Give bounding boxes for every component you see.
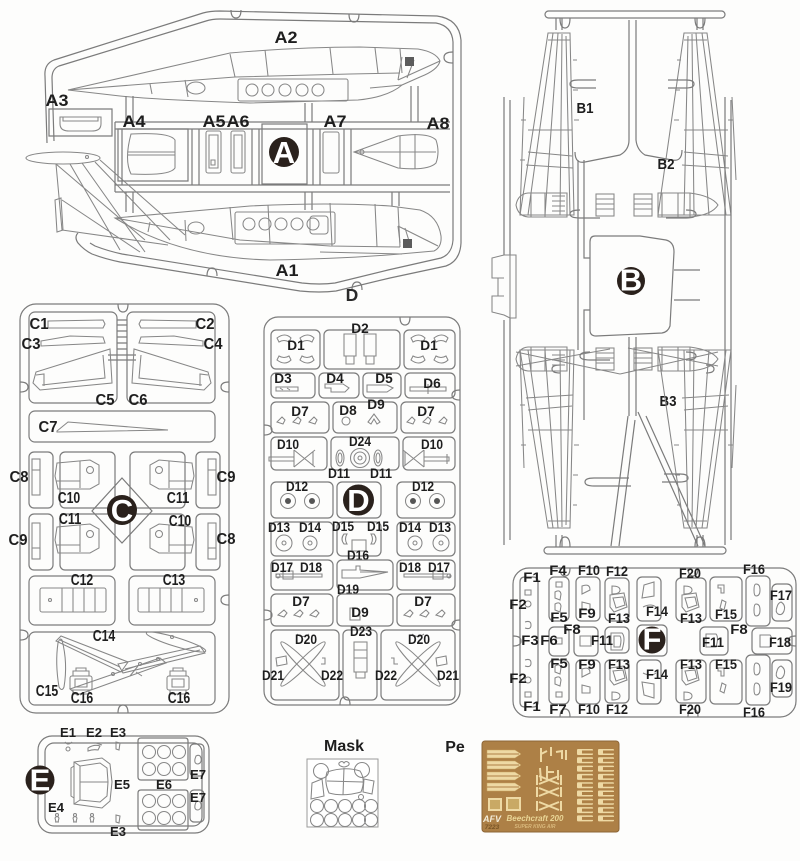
svg-text:D11: D11 (370, 466, 392, 481)
svg-text:F12: F12 (606, 564, 628, 579)
svg-text:E7: E7 (190, 767, 206, 782)
svg-text:D17: D17 (271, 560, 293, 575)
svg-text:F2: F2 (509, 597, 527, 612)
svg-text:D12: D12 (412, 479, 434, 494)
svg-text:D10: D10 (277, 437, 299, 452)
svg-text:C15: C15 (36, 683, 59, 700)
svg-text:E2: E2 (86, 725, 102, 740)
svg-text:F: F (643, 622, 662, 657)
svg-text:C13: C13 (163, 572, 186, 589)
svg-text:Beechcraft 200: Beechcraft 200 (507, 814, 564, 823)
svg-text:F13: F13 (608, 611, 630, 626)
svg-text:C9: C9 (9, 532, 28, 549)
svg-text:D: D (346, 285, 359, 305)
svg-text:D22: D22 (375, 668, 397, 683)
svg-text:F17: F17 (770, 588, 792, 603)
svg-text:F18: F18 (769, 635, 791, 650)
svg-text:C14: C14 (93, 628, 116, 645)
svg-text:F9: F9 (578, 657, 596, 672)
svg-text:A2: A2 (275, 29, 298, 47)
svg-text:D15: D15 (332, 519, 354, 534)
svg-text:C6: C6 (129, 392, 148, 409)
svg-text:D17: D17 (428, 560, 450, 575)
svg-text:F9: F9 (578, 606, 596, 621)
svg-text:F15: F15 (715, 607, 737, 622)
svg-text:D18: D18 (300, 560, 322, 575)
svg-text:F16: F16 (743, 562, 765, 577)
svg-text:C8: C8 (10, 469, 29, 486)
svg-text:E3: E3 (110, 725, 126, 740)
svg-text:F4: F4 (549, 563, 567, 578)
svg-text:Mask: Mask (324, 738, 364, 755)
svg-text:C4: C4 (204, 336, 223, 353)
svg-text:D9: D9 (367, 397, 385, 412)
svg-text:E1: E1 (60, 725, 76, 740)
svg-text:E5: E5 (114, 777, 130, 792)
svg-text:D1: D1 (420, 338, 438, 353)
svg-text:D13: D13 (268, 520, 290, 535)
svg-text:D23: D23 (350, 624, 372, 639)
svg-text:F13: F13 (680, 657, 702, 672)
svg-text:D14: D14 (299, 520, 321, 535)
svg-text:A: A (273, 135, 295, 170)
svg-text:E7: E7 (190, 790, 206, 805)
svg-text:A6: A6 (227, 113, 250, 131)
svg-text:C12: C12 (71, 572, 94, 589)
svg-text:A8: A8 (427, 115, 450, 133)
svg-text:F3: F3 (521, 633, 539, 648)
svg-text:D16: D16 (347, 548, 369, 563)
svg-text:F13: F13 (608, 657, 630, 672)
svg-text:D3: D3 (274, 371, 292, 386)
svg-text:C3: C3 (22, 336, 41, 353)
svg-text:F5: F5 (550, 656, 568, 671)
svg-text:D6: D6 (423, 376, 441, 391)
svg-text:F15: F15 (715, 657, 737, 672)
svg-text:F7: F7 (549, 702, 567, 717)
svg-text:D2: D2 (351, 321, 369, 336)
svg-text:A5: A5 (203, 113, 226, 131)
svg-text:Pe: Pe (445, 739, 465, 756)
svg-text:AFV: AFV (482, 814, 502, 824)
svg-text:F12: F12 (606, 702, 628, 717)
svg-text:D7: D7 (291, 404, 309, 419)
svg-text:F1: F1 (523, 699, 541, 714)
svg-text:D11: D11 (328, 466, 350, 481)
svg-text:D10: D10 (421, 437, 443, 452)
svg-text:F14: F14 (646, 604, 668, 619)
svg-text:B3: B3 (660, 393, 677, 410)
svg-text:D20: D20 (408, 632, 430, 647)
svg-text:D7: D7 (417, 404, 435, 419)
svg-text:D20: D20 (295, 632, 317, 647)
svg-text:F8: F8 (730, 622, 748, 637)
svg-text:C10: C10 (169, 513, 192, 530)
svg-text:D22: D22 (321, 668, 343, 683)
svg-text:F10: F10 (578, 563, 600, 578)
svg-text:C: C (111, 493, 133, 528)
svg-text:SUPER KING AIR: SUPER KING AIR (515, 824, 556, 830)
svg-text:D1: D1 (287, 338, 305, 353)
svg-text:D8: D8 (339, 403, 357, 418)
svg-text:F11: F11 (702, 635, 724, 650)
svg-text:E: E (30, 763, 51, 798)
svg-text:F10: F10 (578, 702, 600, 717)
svg-text:F11: F11 (591, 633, 613, 648)
svg-text:D18: D18 (399, 560, 421, 575)
svg-text:B2: B2 (658, 156, 675, 173)
svg-text:F6: F6 (540, 633, 558, 648)
svg-text:D5: D5 (375, 371, 393, 386)
svg-text:C10: C10 (58, 490, 81, 507)
svg-text:F14: F14 (646, 667, 668, 682)
svg-text:F20: F20 (679, 566, 701, 581)
svg-text:D14: D14 (399, 520, 421, 535)
svg-text:A1: A1 (276, 262, 299, 280)
svg-text:B: B (620, 263, 642, 298)
svg-text:F13: F13 (680, 611, 702, 626)
svg-text:C2: C2 (196, 316, 215, 333)
svg-text:E3: E3 (110, 824, 126, 839)
svg-text:D9: D9 (351, 605, 369, 620)
svg-text:C16: C16 (168, 690, 191, 707)
svg-text:C11: C11 (59, 511, 82, 528)
svg-text:D21: D21 (437, 668, 459, 683)
svg-text:D15: D15 (367, 519, 389, 534)
svg-text:C11: C11 (167, 490, 190, 507)
svg-text:D7: D7 (414, 594, 432, 609)
svg-text:F20: F20 (679, 702, 701, 717)
svg-text:C8: C8 (217, 531, 236, 548)
svg-text:C7: C7 (39, 419, 58, 436)
svg-text:B1: B1 (577, 100, 594, 117)
svg-text:C5: C5 (96, 392, 115, 409)
svg-text:D7: D7 (292, 594, 310, 609)
svg-text:F1: F1 (523, 570, 541, 585)
svg-text:F2: F2 (509, 671, 527, 686)
svg-text:A7: A7 (324, 113, 347, 131)
svg-text:A4: A4 (123, 113, 147, 131)
svg-text:D4: D4 (326, 371, 344, 386)
svg-text:D24: D24 (349, 434, 371, 449)
svg-text:F16: F16 (743, 705, 765, 720)
svg-text:C9: C9 (217, 469, 236, 486)
svg-text:7223: 7223 (485, 824, 500, 831)
svg-text:F19: F19 (770, 680, 792, 695)
svg-text:C16: C16 (71, 690, 94, 707)
svg-text:D21: D21 (262, 668, 284, 683)
svg-text:E4: E4 (48, 800, 65, 815)
svg-text:D12: D12 (286, 479, 308, 494)
svg-text:A3: A3 (46, 92, 69, 110)
svg-text:C1: C1 (30, 316, 49, 333)
svg-text:D13: D13 (429, 520, 451, 535)
svg-text:F8: F8 (563, 622, 581, 637)
svg-text:D: D (347, 483, 369, 518)
